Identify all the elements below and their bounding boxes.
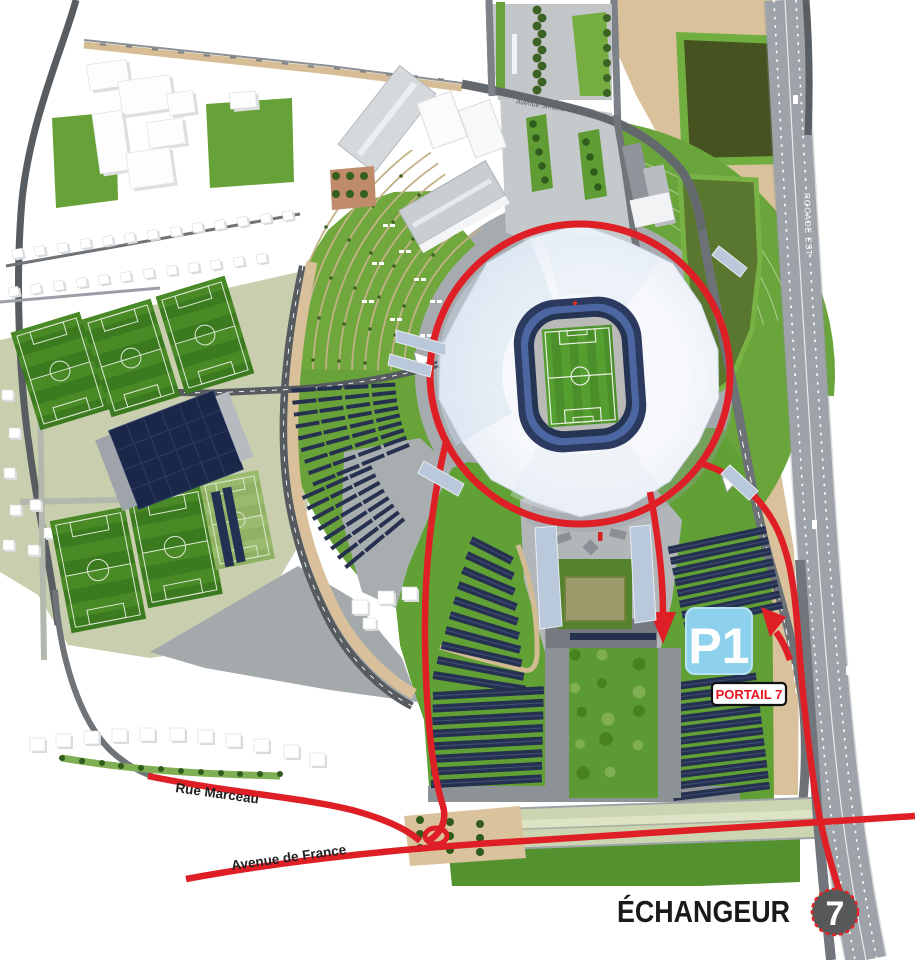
svg-text:7: 7 bbox=[826, 895, 845, 933]
svg-text:P1: P1 bbox=[688, 618, 749, 674]
svg-text:ÉCHANGEUR: ÉCHANGEUR bbox=[617, 894, 790, 929]
svg-text:PORTAIL 7: PORTAIL 7 bbox=[716, 687, 783, 702]
